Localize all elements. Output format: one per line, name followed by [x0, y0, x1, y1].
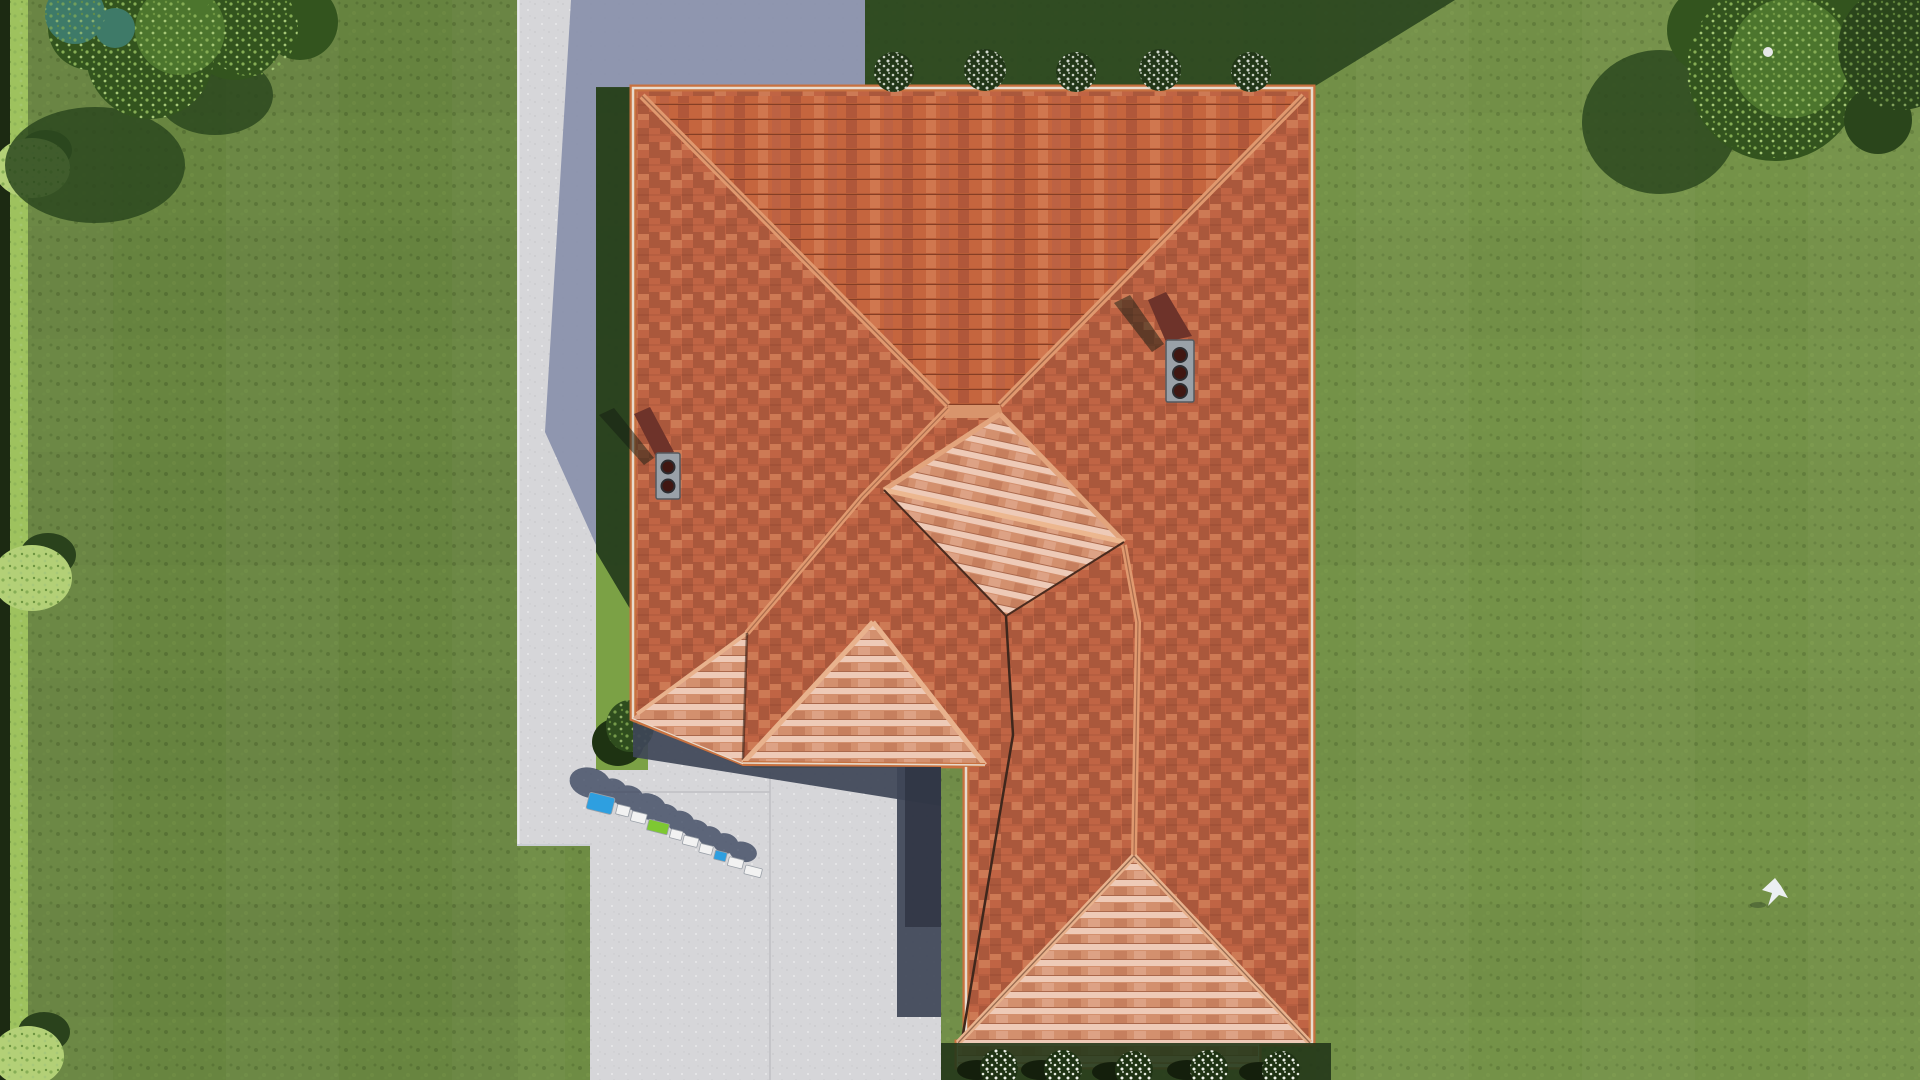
flower-bush	[1231, 52, 1271, 92]
shadow-grass-left-strip	[596, 87, 633, 614]
bottom-planting-strip	[941, 1043, 1331, 1080]
chimney-left-vent-1	[662, 461, 675, 474]
tree-corner-top-right	[1838, 0, 1920, 154]
scene-svg	[0, 0, 1920, 1080]
flower-bush	[874, 52, 914, 92]
flower-bush	[964, 49, 1006, 91]
flower-bush	[1056, 52, 1096, 92]
wall-shadow-core	[905, 767, 941, 927]
chimney-right-vent-3	[1173, 384, 1187, 398]
aerial-render-stage	[0, 0, 1920, 1080]
chimney-right-vent-2	[1173, 366, 1187, 380]
tree-shadow	[5, 107, 185, 223]
white-bird-in-tree	[1763, 47, 1773, 57]
chimney-left-vent-2	[662, 480, 675, 493]
bird-shadow	[1750, 902, 1766, 908]
chimney-right-vent-1	[1173, 348, 1187, 362]
flower-bush	[1139, 49, 1181, 91]
